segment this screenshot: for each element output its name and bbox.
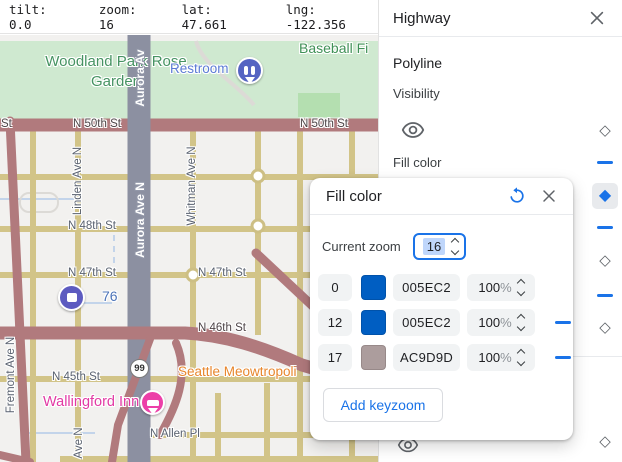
hex-value[interactable]: 005EC2	[393, 309, 460, 336]
hex-value[interactable]: 005EC2	[393, 274, 460, 301]
add-keyzoom-button[interactable]: Add keyzoom	[323, 388, 443, 422]
opacity-field[interactable]: 100%	[467, 309, 535, 336]
popup-header: Fill color	[310, 178, 573, 215]
ave-n-label: Ave N	[73, 425, 85, 461]
map-style-editor: tilt: 0.0 zoom: 16 lat: 47.661 lng: -122…	[0, 0, 622, 462]
keyzoom-indicator-diamond-4[interactable]: ◇	[592, 428, 618, 454]
aurora-ave-label-mid: Aurora Ave N	[133, 176, 147, 264]
n50th-st-label-left: N 50th St	[73, 118, 121, 130]
step-down-icon[interactable]	[451, 247, 459, 255]
current-zoom-label: Current zoom	[322, 239, 401, 254]
restroom-pin-icon[interactable]	[236, 57, 263, 84]
keyzoom-row-1: 12 005EC2 100%	[318, 309, 573, 336]
hex-value[interactable]: AC9D9D	[393, 344, 460, 371]
fill-color-popup: Fill color Current zoom 16 0 00	[310, 178, 573, 440]
gas-station-pin-icon[interactable]	[58, 284, 85, 311]
status-zoom: zoom: 16	[99, 2, 156, 32]
route-99-shield: 99	[130, 359, 149, 378]
opacity-field[interactable]: 100%	[467, 274, 535, 301]
panel-close-icon[interactable]	[588, 9, 606, 27]
n47th-st-label-left: N 47th St	[68, 267, 116, 279]
keyzoom-indicator-dash-3[interactable]	[592, 282, 618, 308]
fill-color-label: Fill color	[393, 155, 441, 170]
keyzoom-level[interactable]: 12	[318, 309, 352, 336]
current-zoom-stepper[interactable]	[452, 239, 458, 254]
keyzoom-level[interactable]: 17	[318, 344, 352, 371]
baseball-field-label: Baseball Fi	[299, 40, 368, 56]
remove-keyzoom-button[interactable]	[555, 356, 571, 359]
n-allen-pl-label: N Allen Pl	[150, 428, 200, 440]
section-polyline: Polyline	[393, 55, 442, 71]
color-swatch[interactable]	[361, 275, 386, 300]
visibility-label: Visibility	[393, 86, 440, 101]
keyzoom-indicator-dash-2[interactable]	[592, 214, 618, 240]
visibility-eye-icon[interactable]	[401, 119, 425, 141]
gas-76-label: 76	[102, 288, 118, 304]
step-up-icon[interactable]	[451, 238, 459, 246]
opacity-stepper[interactable]	[518, 350, 524, 365]
keyzoom-row-2: 17 AC9D9D 100%	[318, 344, 573, 371]
n50th-st-label-right: N 50th St	[300, 118, 348, 130]
opacity-field[interactable]: 100%	[467, 344, 535, 371]
n45th-st-label: N 45th St	[52, 371, 100, 383]
aurora-ave-label-top: Aurora Av	[133, 44, 147, 112]
linden-ave-label: Linden Ave N	[72, 145, 84, 217]
visibility-keyzoom-indicator[interactable]: ◇	[592, 117, 618, 143]
n47th-st-label-right: N 47th St	[198, 267, 246, 279]
keyzoom-indicator-diamond-2[interactable]: ◇	[592, 247, 618, 273]
selected-keyzoom-indicator[interactable]: ◆	[592, 183, 618, 209]
remove-keyzoom-button[interactable]	[555, 321, 571, 324]
color-swatch[interactable]	[361, 345, 386, 370]
seattle-meowtropolis-label: Seattle Meowtropoli	[178, 364, 297, 379]
status-lat: lat: 47.661	[182, 2, 260, 32]
popup-close-icon[interactable]	[539, 186, 559, 206]
keyzoom-row-0: 0 005EC2 100%	[318, 274, 573, 301]
n50th-st-fragment: St	[1, 118, 12, 130]
opacity-stepper[interactable]	[518, 315, 524, 330]
fill-color-keyzoom-indicator[interactable]	[592, 149, 618, 175]
status-tilt: tilt: 0.0	[9, 2, 73, 32]
color-swatch[interactable]	[361, 310, 386, 335]
fremont-ave-label: Fremont Ave N	[5, 331, 17, 419]
current-zoom-input[interactable]: 16	[413, 233, 466, 260]
wallingford-inn-label: Wallingford Inn	[43, 394, 139, 410]
n48th-st-label: N 48th St	[68, 220, 116, 232]
whitman-ave-label: Whitman Ave N	[186, 145, 198, 227]
popup-title: Fill color	[326, 188, 495, 205]
current-zoom-value[interactable]: 16	[423, 238, 445, 255]
panel-header: Highway	[379, 0, 622, 37]
reset-icon[interactable]	[507, 186, 527, 206]
status-lng: lng: -122.356	[286, 2, 378, 32]
status-bar: tilt: 0.0 zoom: 16 lat: 47.661 lng: -122…	[0, 0, 378, 34]
n46th-st-label: N 46th St	[198, 322, 246, 334]
hotel-pin-icon[interactable]	[140, 390, 165, 415]
keyzoom-level[interactable]: 0	[318, 274, 352, 301]
opacity-stepper[interactable]	[518, 280, 524, 295]
panel-title: Highway	[393, 10, 451, 27]
keyzoom-indicator-diamond-3[interactable]: ◇	[592, 314, 618, 340]
current-zoom-row: Current zoom 16	[322, 233, 573, 260]
restroom-label: Restroom	[170, 61, 229, 76]
